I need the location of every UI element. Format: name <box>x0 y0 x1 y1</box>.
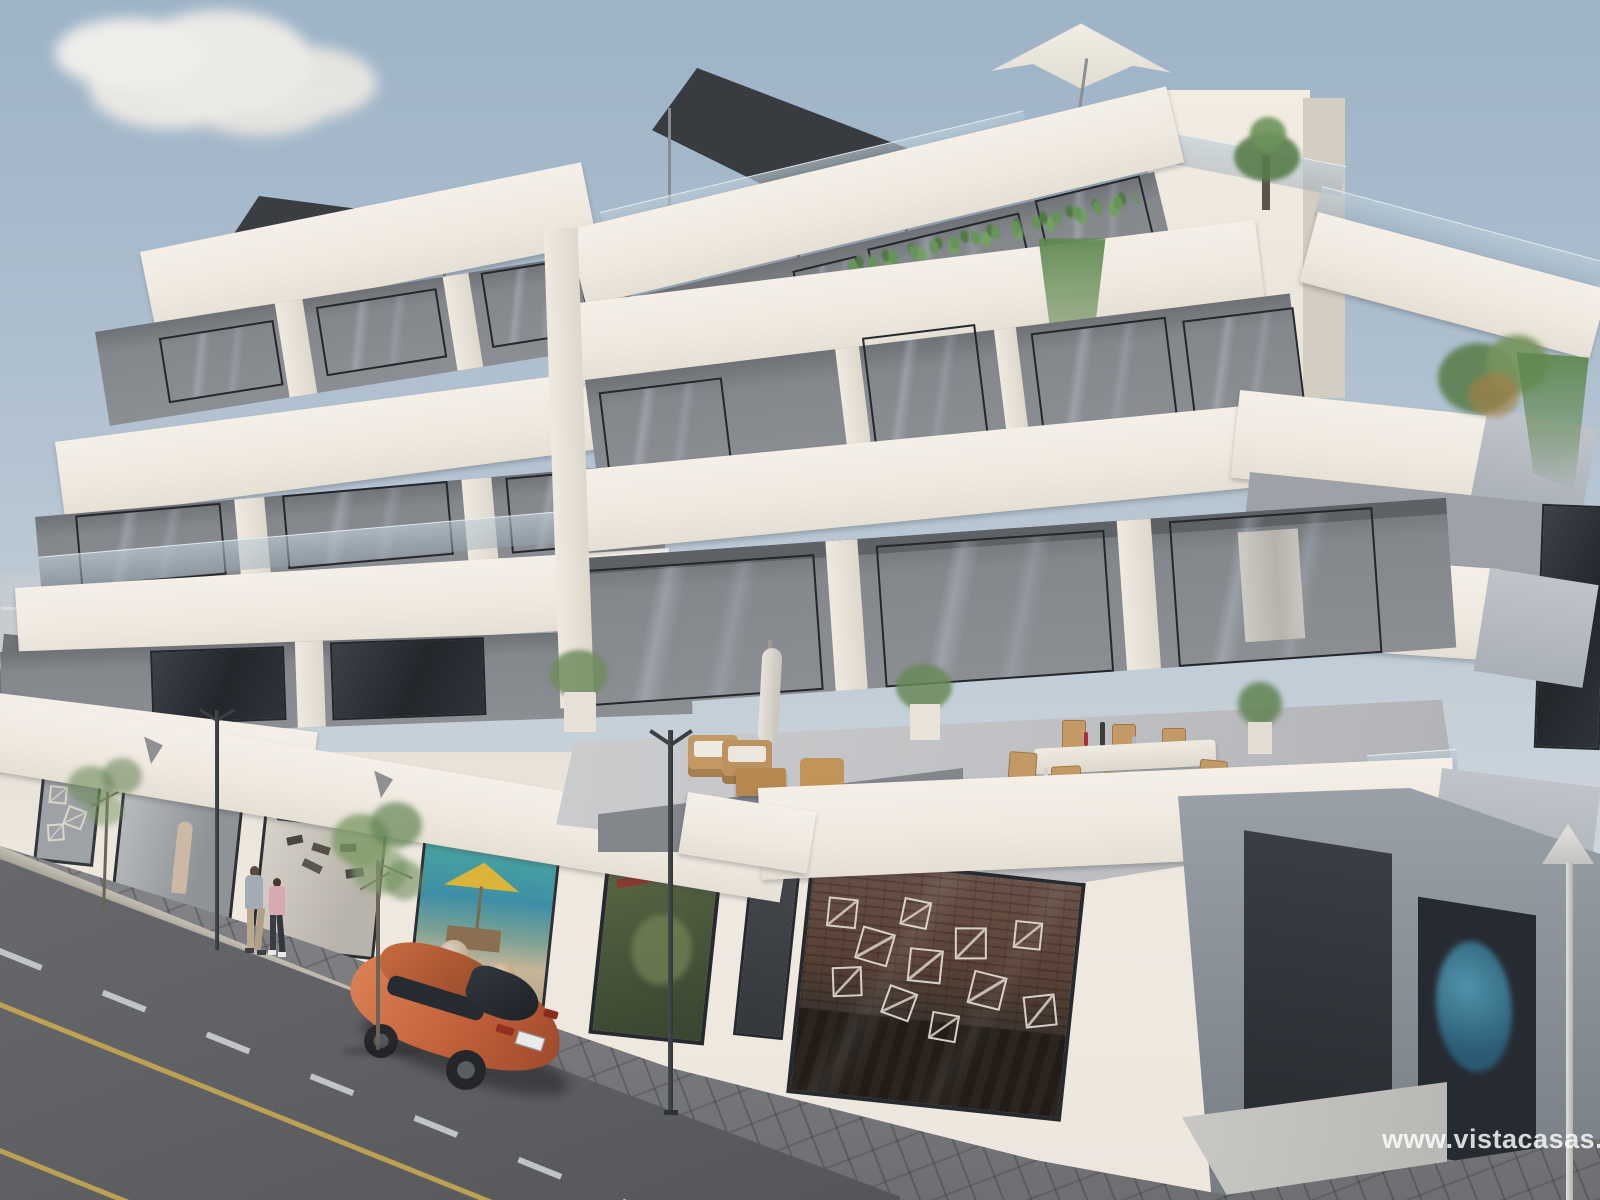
corner-band-mid-side <box>1474 568 1599 688</box>
display-beach-umbrella <box>444 859 522 893</box>
architectural-render-scene: www.vistacasas.com <box>0 0 1600 1200</box>
pilaster <box>443 273 484 371</box>
terrace-grass-pot <box>896 664 954 746</box>
window <box>330 637 487 720</box>
street-lamp-2 <box>648 718 696 1114</box>
mannequin <box>171 821 193 894</box>
car-wheel <box>446 1050 486 1090</box>
window <box>159 320 284 403</box>
pilaster <box>825 539 867 691</box>
window <box>316 288 447 376</box>
street-lamp-1 <box>196 700 240 950</box>
wine-glass <box>1084 732 1088 746</box>
pedestrian-woman <box>264 878 292 958</box>
tree-small <box>60 758 150 918</box>
pilaster <box>295 641 326 728</box>
pilaster <box>1117 519 1161 671</box>
bottle <box>1100 722 1105 746</box>
terrace-corner-plant <box>1236 682 1284 760</box>
tree-sidewalk <box>322 800 432 1060</box>
shop-window-cube-display <box>786 854 1086 1122</box>
tree-shadow <box>342 1046 422 1056</box>
terrace-potted-plant <box>548 650 612 736</box>
watermark: www.vistacasas.com <box>1382 1124 1600 1155</box>
curtain <box>1238 528 1306 642</box>
palm-plant <box>1232 115 1302 215</box>
cloud <box>55 18 205 88</box>
